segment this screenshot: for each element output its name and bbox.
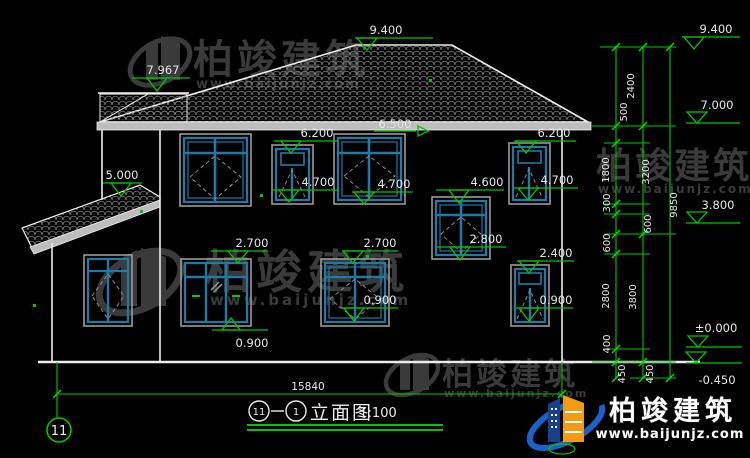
level-sill-a: 0.900 bbox=[236, 336, 269, 350]
dim-450a: 450 bbox=[617, 364, 628, 383]
dim-2400: 2400 bbox=[626, 73, 637, 98]
level-eave-b: 6.200 bbox=[538, 126, 571, 140]
svg-text:柏竣建筑: 柏竣建筑 bbox=[596, 146, 750, 187]
level-wing-ridge: 7.967 bbox=[147, 63, 180, 77]
logo-building-right bbox=[563, 395, 584, 442]
level-right-floor2: 3.800 bbox=[702, 198, 735, 212]
level-stair-sill: 2.800 bbox=[470, 232, 503, 246]
watermark-right: 柏竣建筑 www.baijunjz.com bbox=[596, 146, 750, 196]
level-eave-left: 6.500 bbox=[379, 117, 412, 131]
dim-3200: 3200 bbox=[641, 159, 652, 184]
dim-300: 300 bbox=[602, 193, 613, 212]
logo-building-left bbox=[548, 398, 560, 442]
title-scale: 1:100 bbox=[359, 406, 396, 421]
cad-elevation-drawing: 柏竣建筑 www.baijunjz.com 柏竣建筑 www.baijunjz.… bbox=[0, 0, 750, 458]
dim-500: 500 bbox=[619, 102, 630, 121]
level-stair-top: 4.600 bbox=[471, 175, 504, 189]
level-sill-c: 0.900 bbox=[540, 293, 573, 307]
level-eave-a: 6.200 bbox=[301, 126, 334, 140]
level-right-ground: ±0.000 bbox=[695, 321, 738, 335]
title-axis-end: 1 bbox=[293, 407, 299, 418]
level-right-ridge: 9.400 bbox=[700, 22, 733, 36]
level-right-eave: 7.000 bbox=[701, 98, 734, 112]
brand-name: 柏竣建筑 bbox=[609, 395, 737, 427]
dim-600a: 600 bbox=[643, 214, 654, 233]
wing-roof bbox=[98, 93, 189, 122]
brand-url: www.baijunjz.com bbox=[596, 427, 745, 442]
level-win1f-a: 2.700 bbox=[236, 236, 269, 250]
title-axis-start: 11 bbox=[253, 407, 266, 418]
grid-bubble-label: 11 bbox=[51, 424, 68, 439]
dim-3800: 3800 bbox=[628, 284, 639, 309]
dim-9850: 9850 bbox=[669, 192, 680, 217]
dim-2800: 2800 bbox=[601, 283, 612, 308]
dim-1800: 1800 bbox=[601, 157, 612, 182]
level-win1f-b: 2.700 bbox=[364, 236, 397, 250]
dim-15840: 15840 bbox=[291, 381, 324, 393]
main-eave-fascia bbox=[97, 122, 591, 130]
level-main-ridge: 9.400 bbox=[370, 23, 403, 37]
level-sill-b: 0.900 bbox=[364, 293, 397, 307]
dim-450b: 450 bbox=[645, 364, 656, 383]
level-win2f-b: 4.700 bbox=[378, 177, 411, 191]
level-win2f-c: 4.700 bbox=[541, 173, 574, 187]
level-porch: 5.000 bbox=[106, 168, 139, 182]
dim-400: 400 bbox=[602, 334, 613, 353]
drawing-canvas: 柏竣建筑 www.baijunjz.com 柏竣建筑 www.baijunjz.… bbox=[0, 0, 750, 458]
dim-600b: 600 bbox=[602, 233, 613, 252]
level-win2f-a: 4.700 bbox=[302, 175, 335, 189]
level-win1f-c: 2.400 bbox=[540, 246, 573, 260]
level-right-base: -0.450 bbox=[698, 373, 735, 387]
